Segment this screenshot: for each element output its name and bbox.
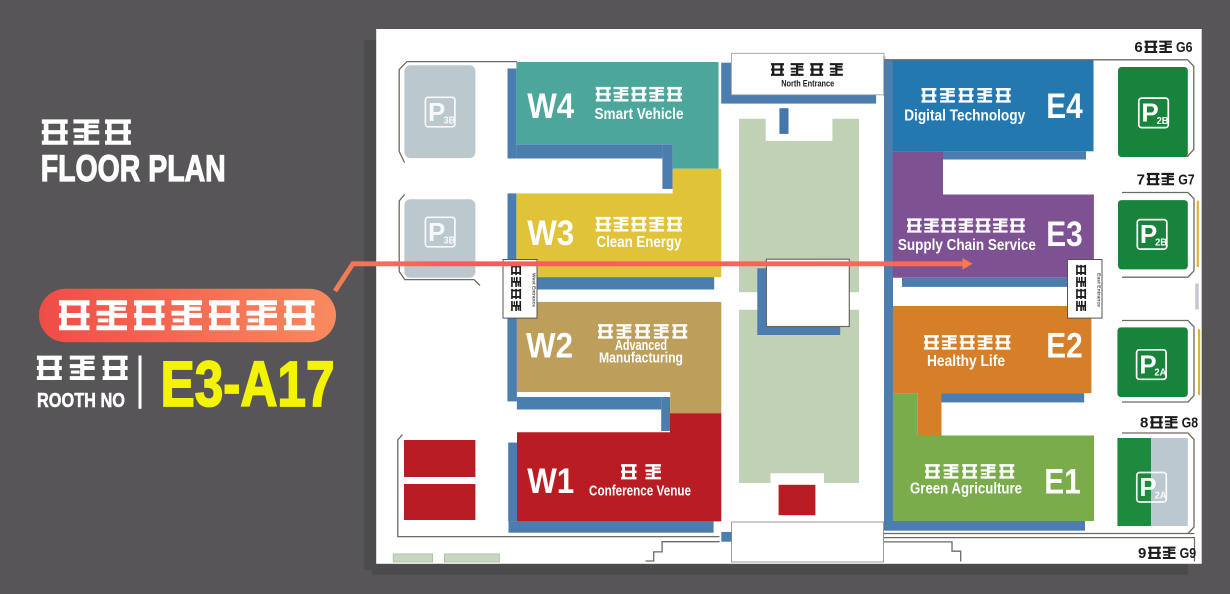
svg-text:9: 9 [1138, 545, 1146, 562]
svg-text:FLOOR PLAN: FLOOR PLAN [41, 148, 226, 189]
svg-text:Supply Chain Service: Supply Chain Service [898, 237, 1036, 254]
svg-text:2B: 2B [1155, 237, 1167, 249]
svg-text:2A: 2A [1155, 489, 1167, 501]
svg-text:2A: 2A [1154, 367, 1166, 379]
svg-text:E2: E2 [1046, 326, 1083, 365]
svg-text:3B: 3B [444, 235, 456, 247]
svg-text:W4: W4 [527, 87, 574, 126]
svg-text:G6: G6 [1176, 39, 1193, 56]
svg-text:North Entrance: North Entrance [781, 78, 834, 88]
svg-text:G7: G7 [1178, 171, 1195, 188]
svg-text:2B: 2B [1157, 115, 1169, 127]
svg-text:G8: G8 [1182, 415, 1199, 432]
svg-text:Conference Venue: Conference Venue [589, 482, 691, 499]
svg-text:Smart Vehicle: Smart Vehicle [595, 106, 684, 123]
svg-text:3B: 3B [444, 115, 456, 127]
svg-text:G9: G9 [1180, 545, 1197, 562]
svg-text:W3: W3 [527, 214, 574, 253]
svg-text:Clean Energy: Clean Energy [597, 234, 682, 251]
svg-text:ROOTH NO: ROOTH NO [37, 390, 125, 412]
svg-text:E1: E1 [1044, 463, 1081, 502]
svg-text:E3-A17: E3-A17 [161, 348, 335, 420]
svg-text:Green Agriculture: Green Agriculture [910, 481, 1022, 498]
svg-text:7: 7 [1137, 171, 1145, 188]
svg-text:8: 8 [1140, 415, 1148, 432]
svg-text:Healthy Life: Healthy Life [927, 353, 1005, 370]
svg-text:W1: W1 [527, 462, 574, 501]
svg-text:E4: E4 [1046, 87, 1083, 126]
svg-text:E3: E3 [1046, 215, 1083, 254]
svg-text:W2: W2 [526, 326, 573, 365]
svg-text:East Entrance: East Entrance [1097, 273, 1102, 308]
svg-text:6: 6 [1134, 39, 1142, 56]
svg-text:West Entrance: West Entrance [532, 273, 537, 308]
svg-text:Digital Technology: Digital Technology [904, 107, 1025, 124]
svg-text:Manufacturing: Manufacturing [599, 349, 683, 366]
